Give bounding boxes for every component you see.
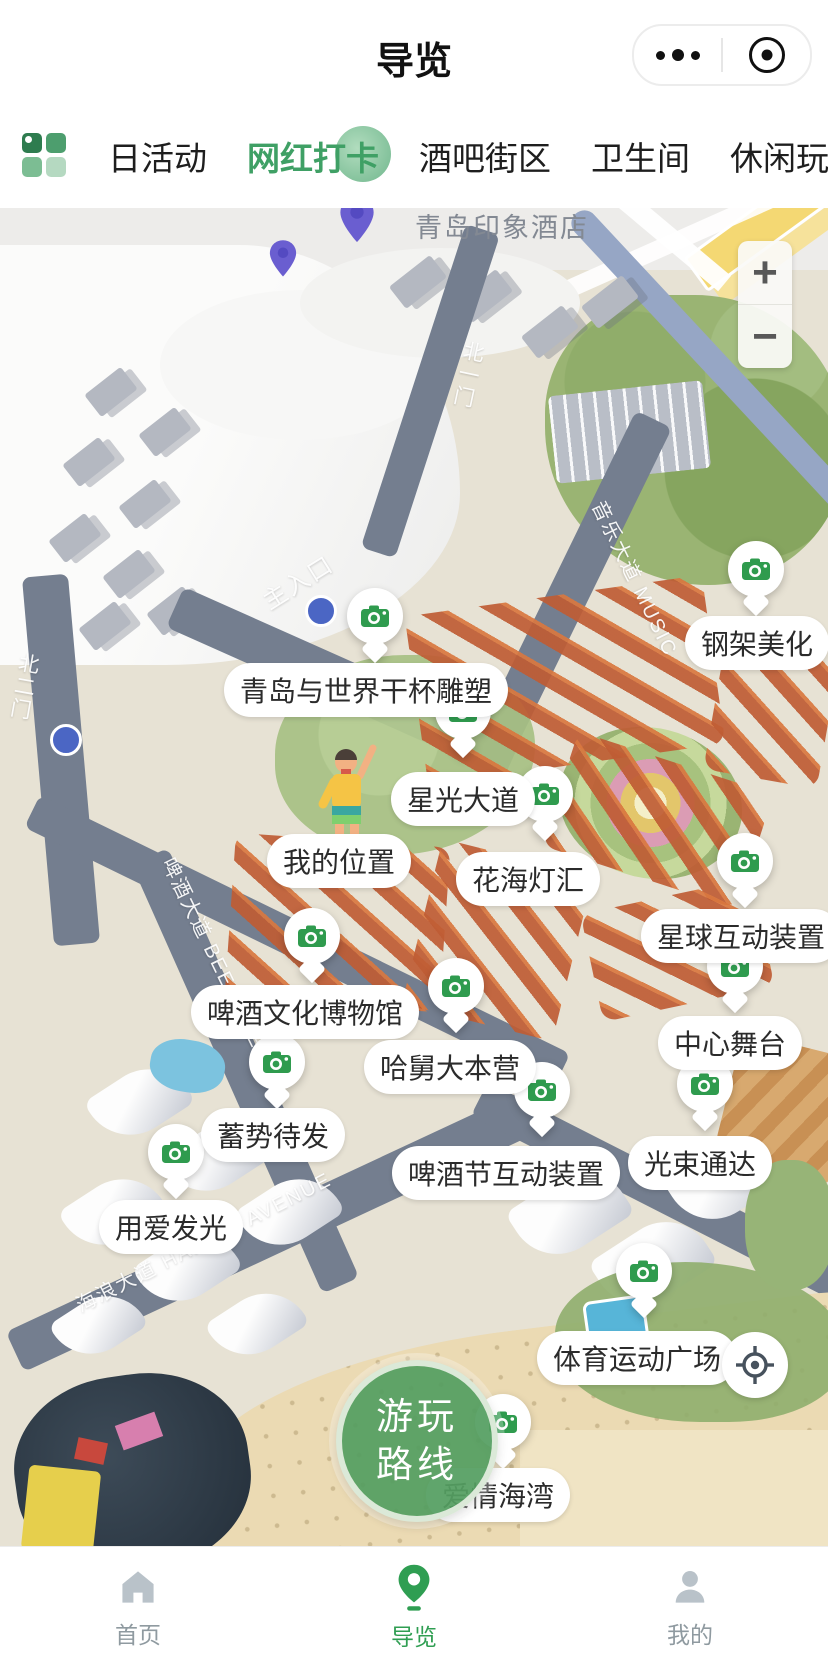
more-button[interactable] <box>634 26 721 84</box>
category-tabbar: 日活动 网红打卡 酒吧街区 卫生间 休闲玩乐 <box>0 104 828 208</box>
poi-pin-pijiu-bowuguan[interactable] <box>283 908 341 982</box>
bottom-navbar: 首页 导览 我的 <box>0 1546 828 1667</box>
poi-label-gangjia-meihua[interactable]: 钢架美化 <box>685 616 828 670</box>
map-zoom-control: + − <box>738 241 792 368</box>
person-icon <box>668 1565 712 1609</box>
poi-layer: 钢架美化青岛与世界干杯雕塑星光大道花海灯汇星球互动装置啤酒文化博物馆中心舞台哈舅… <box>0 208 828 1547</box>
poi-label-ganbei-diaosu[interactable]: 青岛与世界干杯雕塑 <box>224 663 508 717</box>
poi-label-pijiu-bowuguan[interactable]: 啤酒文化博物馆 <box>191 985 419 1039</box>
tab-restroom[interactable]: 卫生间 <box>591 132 690 180</box>
poi-label-xingqiu-hudong[interactable]: 星球互动装置 <box>641 909 828 963</box>
poi-pin-tiyu-guangchang[interactable] <box>615 1243 673 1317</box>
map-world: 青岛印象酒店 主入口 北一门 北二门 音乐大道 MUSIC 啤酒大道 BEER … <box>0 208 828 1547</box>
tab-bar-street[interactable]: 酒吧街区 <box>419 132 551 180</box>
camera-icon <box>616 1243 672 1299</box>
category-grid-icon[interactable] <box>22 133 68 179</box>
map-canvas[interactable]: 青岛印象酒店 主入口 北一门 北二门 音乐大道 MUSIC 啤酒大道 BEER … <box>0 208 828 1547</box>
home-icon <box>116 1565 160 1609</box>
app-header: 导览 <box>0 0 828 104</box>
camera-icon <box>249 1034 305 1090</box>
capsule-home-icon <box>749 37 785 73</box>
poi-label-hajiu-dabenying[interactable]: 哈舅大本营 <box>364 1040 536 1094</box>
camera-icon <box>284 908 340 964</box>
camera-icon <box>428 958 484 1014</box>
poi-pin-xingqiu-hudong[interactable] <box>716 833 774 907</box>
wechat-capsule <box>632 24 812 86</box>
poi-pin-yongai-faguang[interactable] <box>147 1124 205 1198</box>
capsule-home-button[interactable] <box>723 26 810 84</box>
zoom-out-button[interactable]: − <box>738 305 792 368</box>
camera-icon <box>717 833 773 889</box>
tab-leisure[interactable]: 休闲玩乐 <box>730 132 828 180</box>
poi-label-guangshu-tongda[interactable]: 光束通达 <box>628 1136 772 1190</box>
map-pin-icon <box>393 1563 435 1611</box>
poi-label-xingguang-dadao[interactable]: 星光大道 <box>391 772 535 826</box>
nav-item-home[interactable]: 首页 <box>0 1547 276 1667</box>
compass-target-icon <box>735 1345 775 1385</box>
poi-label-zhongxin-wutai[interactable]: 中心舞台 <box>658 1016 802 1070</box>
locate-me-button[interactable] <box>722 1332 788 1398</box>
zoom-in-button[interactable]: + <box>738 241 792 305</box>
poi-pin-xushi-daifa[interactable] <box>248 1034 306 1108</box>
miniprogram-screen: 导览 日活动 网红打卡 酒吧街区 卫生间 休闲玩乐 <box>0 0 828 1667</box>
page-title: 导览 <box>376 30 452 85</box>
poi-pin-hajiu-dabenying[interactable] <box>427 958 485 1032</box>
tab-wanghong-daka[interactable]: 网红打卡 <box>247 132 379 180</box>
camera-icon <box>148 1124 204 1180</box>
poi-label-yongai-faguang[interactable]: 用爱发光 <box>99 1200 243 1254</box>
play-route-button[interactable]: 游玩 路线 <box>336 1360 498 1522</box>
camera-icon <box>347 588 403 644</box>
my-location-label: 我的位置 <box>267 834 411 888</box>
poi-label-xushi-daifa[interactable]: 蓄势待发 <box>201 1108 345 1162</box>
poi-pin-gangjia-meihua[interactable] <box>727 541 785 615</box>
tab-day-activity[interactable]: 日活动 <box>108 132 207 180</box>
poi-label-tiyu-guangchang[interactable]: 体育运动广场 <box>537 1331 737 1385</box>
poi-pin-ganbei-diaosu[interactable] <box>346 588 404 662</box>
poi-label-huahai-denghui[interactable]: 花海灯汇 <box>456 852 600 906</box>
poi-label-pijiujie-hudong[interactable]: 啤酒节互动装置 <box>392 1146 620 1200</box>
camera-icon <box>728 541 784 597</box>
more-icon <box>656 51 665 60</box>
nav-item-mine[interactable]: 我的 <box>552 1547 828 1667</box>
nav-item-guide[interactable]: 导览 <box>276 1547 552 1667</box>
